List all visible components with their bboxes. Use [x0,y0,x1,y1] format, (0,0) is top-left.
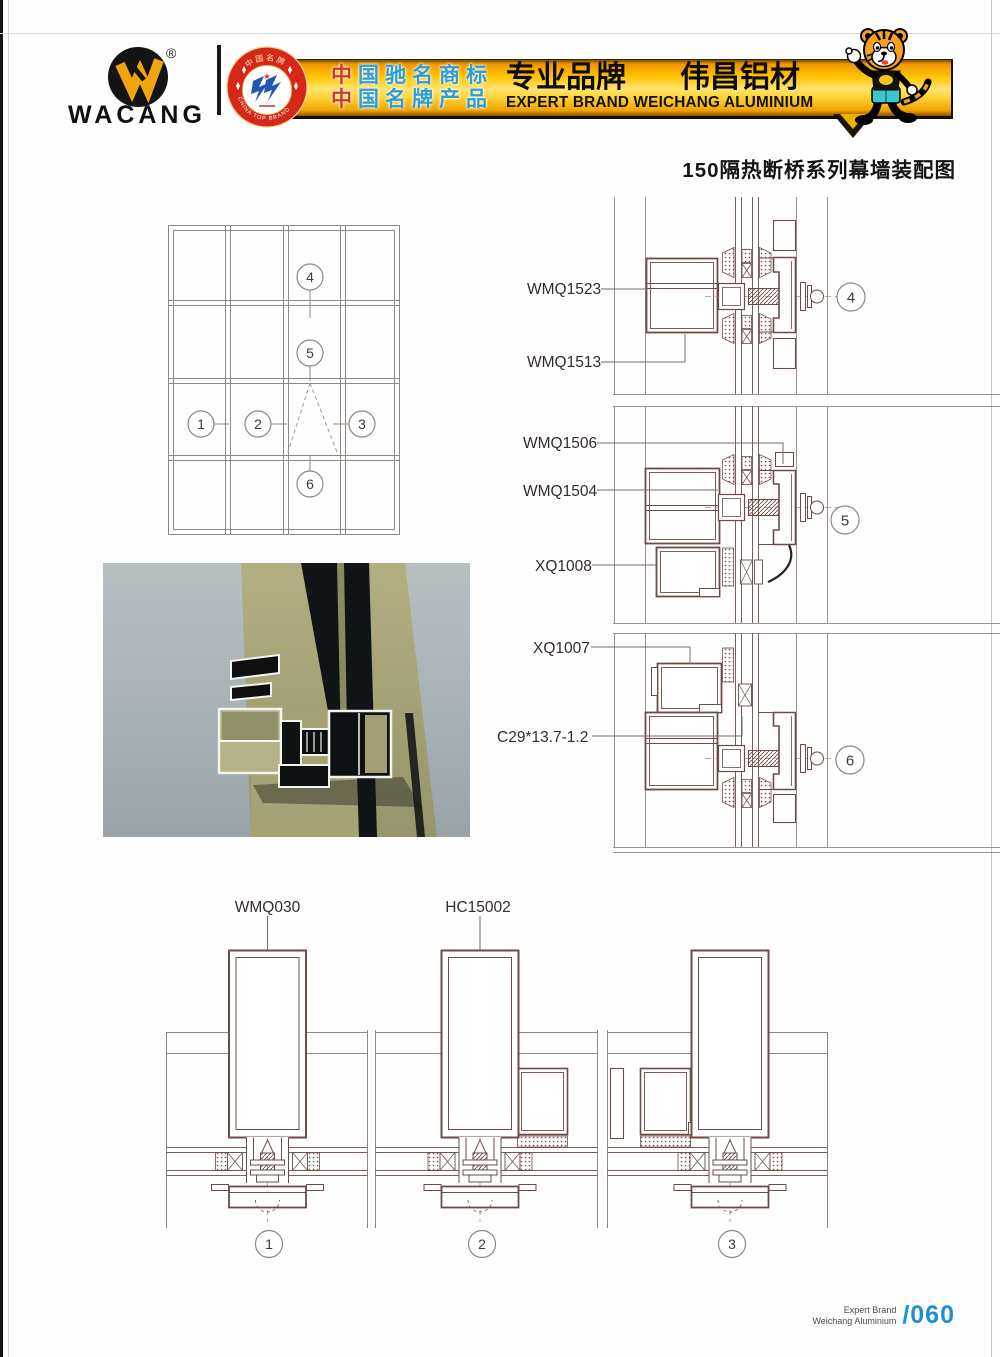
mullion-section-3 [674,951,786,1223]
svg-text:2: 2 [478,1236,486,1252]
opening-frame-attachments [508,1069,699,1148]
page-edge-left [0,0,3,1357]
tiger-mascot-icon [826,24,944,126]
slogan-cn-left: 专业品牌 [506,61,626,94]
svg-text:6: 6 [846,753,854,770]
svg-text:6: 6 [306,476,314,492]
svg-text:4: 4 [306,269,314,285]
elevation-diagram: 1 2 3 4 5 6 [155,210,415,545]
detail-label: XQ1007 [533,640,590,657]
profile-3d-photo [103,563,470,837]
slogan-cn-right: 伟昌铝材 [680,61,800,94]
footer-brand-text: Expert Brand Weichang Aluminium [812,1305,896,1327]
detail-6-drawing [646,648,841,823]
honor-line1: 中国驰名商标 [331,64,516,88]
banner-slogan: 专业品牌 伟昌铝材 EXPERT BRAND WEICHANG ALUMINIU… [506,61,856,112]
detail-label: WMQ1504 [523,483,597,500]
svg-text:4: 4 [847,290,855,307]
detail-label: WMQ1523 [527,281,601,298]
honor-line2: 中国名牌产品 [331,88,516,112]
detail-label: WMQ1513 [527,354,601,371]
page-footer: Expert Brand Weichang Aluminium /060 [700,1301,955,1330]
section-label: HC15002 [445,899,511,916]
wacang-logo: ® WACANG [58,40,220,128]
detail-5-drawing [646,453,841,597]
header-divider [217,45,221,115]
slogan-en: EXPERT BRAND WEICHANG ALUMINIUM [506,94,856,112]
catalog-page: ® WACANG ★ 中国名牌 CHINA TOP BRAND 中国驰名商标 [0,0,1000,1357]
detail-label: C29*13.7-1.2 [497,729,588,746]
brand-name: WACANG [68,101,206,128]
svg-text:1: 1 [265,1236,273,1252]
mullion-section-1 [212,916,324,1222]
bottom-sections: WMQ030 HC15002 1 2 3 [140,880,860,1275]
detail-label: XQ1008 [535,558,592,575]
svg-text:5: 5 [306,345,314,361]
opening-direction-dashes [288,383,337,452]
svg-text:★: ★ [263,72,270,81]
svg-text:3: 3 [358,416,366,432]
page-number: /060 [902,1301,955,1330]
detail-label: WMQ1506 [523,435,597,452]
registered-mark: ® [166,45,177,61]
svg-text:5: 5 [841,513,849,530]
mullion-section-2 [424,916,536,1222]
honor-text: 中国驰名商标 中国名牌产品 [331,64,516,112]
section-label: WMQ030 [235,899,301,916]
detail-4-drawing [647,221,841,369]
svg-text:3: 3 [728,1236,736,1252]
svg-text:1: 1 [197,416,205,432]
china-top-brand-badge: ★ 中国名牌 CHINA TOP BRAND [226,46,308,128]
detail-sections: WMQ1523 WMQ1513 WMQ1506 WMQ1504 XQ1008 X… [490,190,1000,862]
page-title: 150隔热断桥系列幕墙装配图 [560,153,956,183]
page-edge-line [8,0,9,1357]
svg-text:2: 2 [254,416,262,432]
